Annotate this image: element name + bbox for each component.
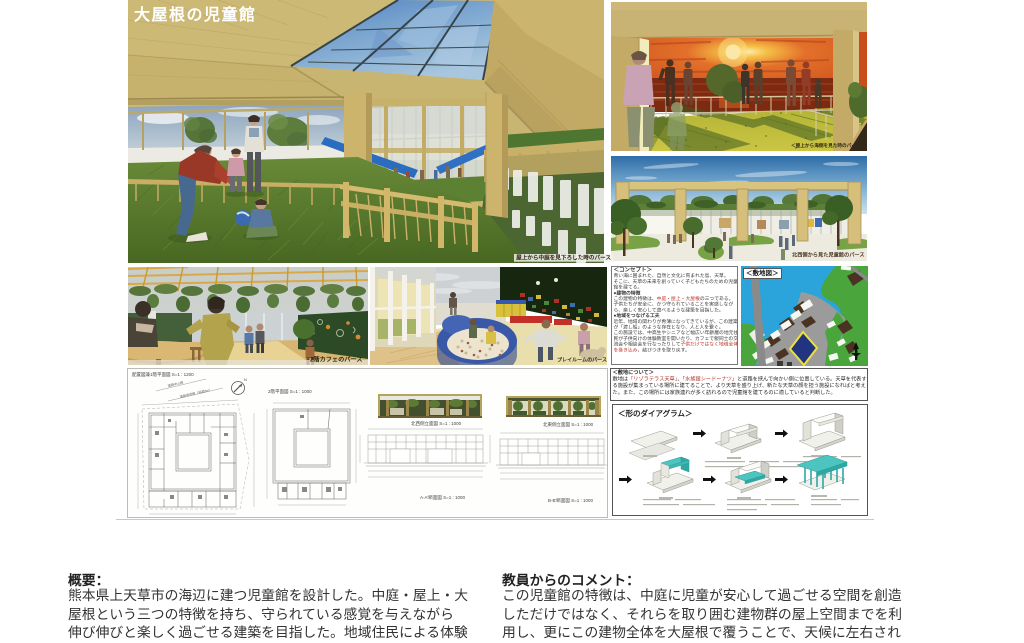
svg-text:北西側立面図 S=1 : 1000: 北西側立面図 S=1 : 1000 (411, 420, 462, 427)
svg-text:道路境界線（幅員6m）: 道路境界線（幅員6m） (179, 387, 212, 399)
svg-text:北東側立面図 S=1 : 1000: 北東側立面図 S=1 : 1000 (543, 421, 594, 428)
svg-text:配置図兼1階平面図 S=1 : 1200: 配置図兼1階平面図 S=1 : 1200 (132, 371, 194, 378)
svg-text:道路中心線: 道路中心線 (167, 379, 184, 388)
svg-text:N: N (244, 377, 247, 382)
svg-text:B-B'断面図 S=1 : 1000: B-B'断面図 S=1 : 1000 (548, 497, 594, 504)
svg-text:A-A'断面図 S=1 : 1000: A-A'断面図 S=1 : 1000 (420, 494, 466, 501)
svg-text:2階平面図 S=1 : 1000: 2階平面図 S=1 : 1000 (268, 388, 312, 395)
